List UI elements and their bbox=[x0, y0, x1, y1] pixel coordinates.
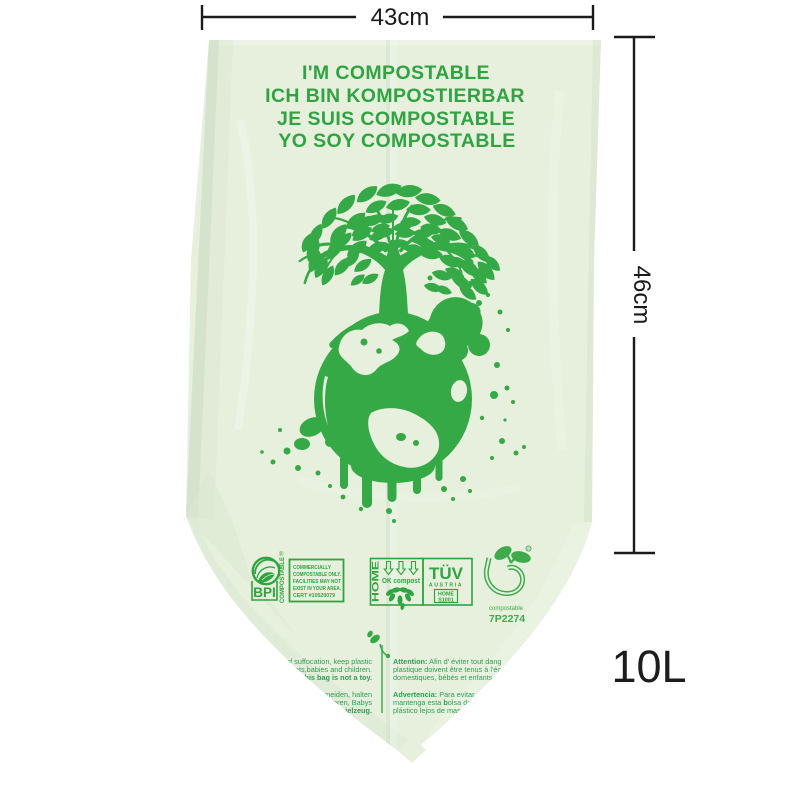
svg-text:FACILITIES MAY NOT: FACILITIES MAY NOT bbox=[293, 579, 342, 585]
svg-text:TÜV: TÜV bbox=[429, 564, 464, 583]
svg-text:46cm: 46cm bbox=[628, 266, 655, 325]
svg-text:ICH BIN KOMPOSTIERBAR: ICH BIN KOMPOSTIERBAR bbox=[265, 85, 525, 107]
svg-text:JE SUIS COMPOSTABLE: JE SUIS COMPOSTABLE bbox=[277, 108, 515, 130]
svg-text:COMPOSTABLE: COMPOSTABLE bbox=[279, 556, 286, 603]
svg-text:COMMERCIALLY: COMMERCIALLY bbox=[293, 565, 331, 571]
svg-text:HOME: HOME bbox=[371, 561, 382, 602]
svg-text:R: R bbox=[527, 547, 530, 551]
svg-text:This bag is not a toy.: This bag is not a toy. bbox=[300, 673, 372, 682]
svg-text:EXIST IN YOUR AREA.: EXIST IN YOUR AREA. bbox=[293, 586, 341, 592]
svg-text:compostable: compostable bbox=[489, 605, 524, 612]
svg-text:®: ® bbox=[279, 551, 284, 558]
svg-text:7P2274: 7P2274 bbox=[489, 613, 525, 625]
svg-text:YO SOY COMPOSTABLE: YO SOY COMPOSTABLE bbox=[278, 130, 515, 152]
svg-text:OK compost: OK compost bbox=[382, 578, 421, 585]
svg-text:COMPOSTABLE ONLY.: COMPOSTABLE ONLY. bbox=[293, 572, 341, 578]
svg-text:AUSTRIA: AUSTRIA bbox=[429, 583, 463, 589]
svg-text:S1001: S1001 bbox=[438, 598, 454, 604]
svg-text:43cm: 43cm bbox=[371, 4, 430, 31]
svg-text:BPI: BPI bbox=[253, 585, 276, 600]
svg-text:I'M COMPOSTABLE: I'M COMPOSTABLE bbox=[302, 62, 490, 84]
svg-text:10L: 10L bbox=[611, 641, 686, 692]
svg-text:CERT #10520079: CERT #10520079 bbox=[293, 593, 335, 599]
